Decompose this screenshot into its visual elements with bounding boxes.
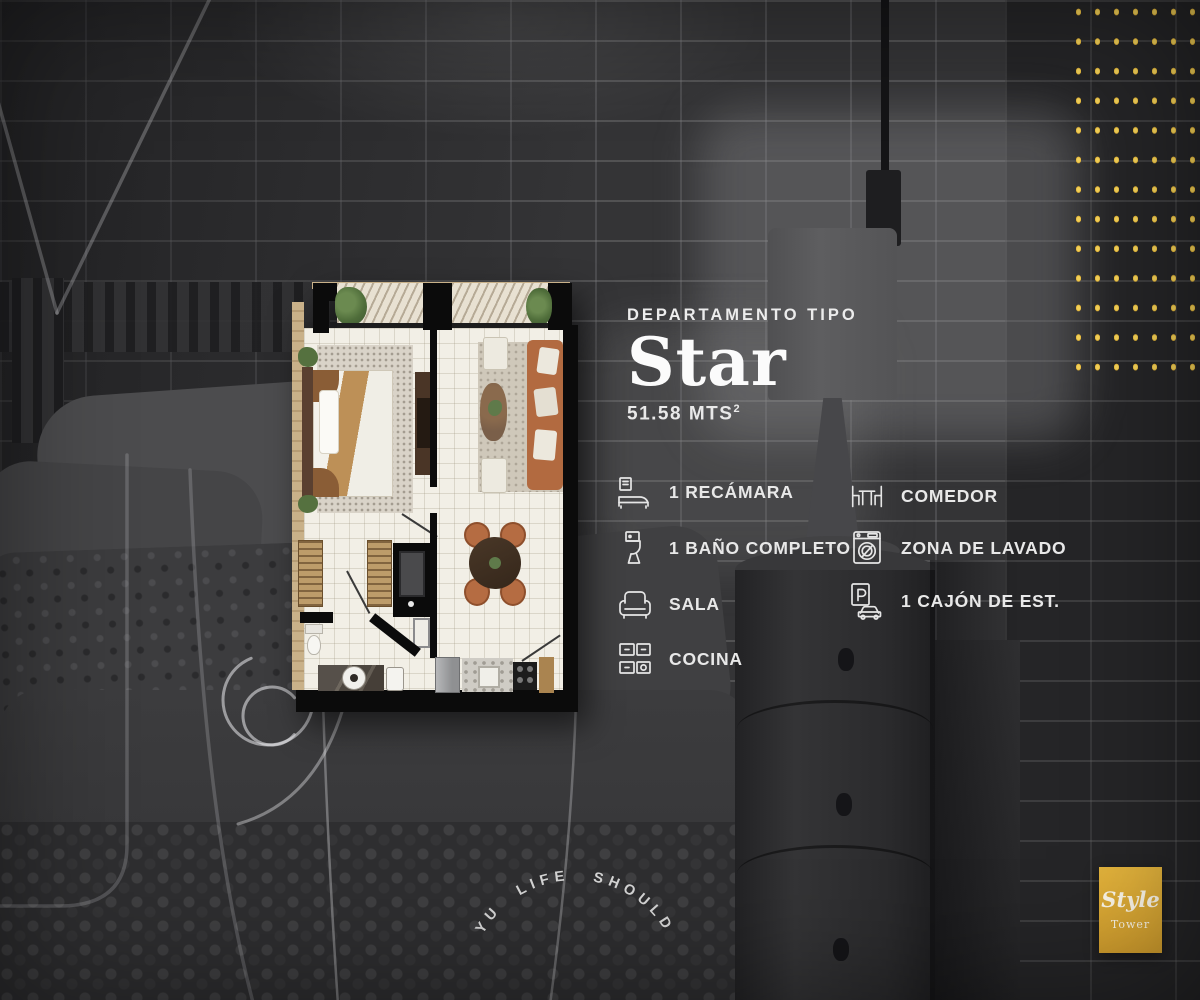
dining-centerpiece bbox=[489, 557, 501, 569]
logo-title: Style bbox=[1099, 887, 1162, 912]
area-value: 51.58 MTS2 bbox=[627, 403, 858, 425]
feature-cajon-est: 1 CAJÓN DE EST. bbox=[847, 581, 1060, 621]
area-number: 51.58 MTS bbox=[627, 403, 733, 424]
bath-fixture bbox=[386, 667, 404, 691]
sofa-icon bbox=[615, 584, 655, 624]
stove-burner-2 bbox=[527, 666, 533, 672]
feature-label: SALA bbox=[669, 594, 720, 615]
feature-label: ZONA DE LAVADO bbox=[901, 538, 1066, 559]
feature-label: 1 BAÑO COMPLETO bbox=[669, 538, 851, 559]
svg-text:YU LIFE SHOULD: YU LIFE SHOULD bbox=[473, 868, 678, 937]
toilet-icon bbox=[615, 528, 655, 568]
letter-u-outline bbox=[0, 455, 127, 906]
closet-right bbox=[367, 540, 392, 607]
hall-tv-knob bbox=[408, 601, 414, 607]
feature-comedor: COMEDOR bbox=[847, 476, 998, 516]
floor-plan bbox=[288, 278, 578, 712]
parking-icon bbox=[847, 581, 887, 621]
kitchen-wood-end bbox=[539, 657, 554, 693]
living-pouf-bottom bbox=[481, 458, 507, 493]
bathroom-top-wall bbox=[300, 612, 333, 623]
bedroom-plant-top bbox=[298, 347, 318, 367]
living-pouf-top bbox=[483, 337, 508, 370]
balcony-rail-left bbox=[337, 323, 423, 328]
feature-recamara: 1 RECÁMARA bbox=[615, 472, 794, 512]
area-superscript: 2 bbox=[733, 403, 741, 415]
kitchen-stove bbox=[513, 662, 537, 690]
letter-y-left-arm bbox=[0, 80, 57, 313]
toilet-bowl bbox=[307, 635, 321, 655]
sofa-cushion-2 bbox=[533, 387, 558, 417]
stove-burner-3 bbox=[517, 677, 523, 683]
hall-appliance-nook bbox=[413, 618, 430, 648]
hanging-line-left bbox=[323, 700, 338, 1000]
floorplan-bottom-wall bbox=[296, 690, 578, 712]
stove-burner-1 bbox=[517, 666, 523, 672]
bed-icon bbox=[615, 472, 655, 512]
laundry-icon bbox=[847, 528, 887, 568]
kitchen-sink bbox=[478, 666, 500, 688]
title-block: DEPARTAMENTO TIPO Star 51.58 MTS2 bbox=[627, 306, 858, 425]
balcony-plant-left bbox=[335, 287, 367, 325]
feature-label: COMEDOR bbox=[901, 486, 998, 507]
feature-label: 1 CAJÓN DE EST. bbox=[901, 591, 1060, 612]
dot-grid-pattern bbox=[1069, 2, 1200, 374]
letter-y-right-arm bbox=[57, 0, 215, 313]
floorplan-right-wall bbox=[563, 325, 578, 690]
style-tower-logo: Style Tower bbox=[1099, 867, 1162, 953]
curved-text-content: YU LIFE SHOULD bbox=[473, 868, 678, 937]
bedroom-headboard bbox=[302, 367, 313, 500]
bed-pillows bbox=[319, 390, 339, 454]
balcony-rail-right bbox=[452, 323, 548, 328]
feature-zona-lavado: ZONA DE LAVADO bbox=[847, 528, 1066, 568]
kitchen-fridge bbox=[435, 657, 460, 693]
balcony-divider bbox=[423, 283, 452, 330]
tv-console-screen bbox=[417, 398, 431, 448]
wall-hall-dining bbox=[430, 513, 437, 658]
feature-label: 1 RECÁMARA bbox=[669, 482, 794, 503]
wall-bedroom-living bbox=[430, 325, 437, 487]
balcony-plant-right bbox=[526, 288, 552, 326]
feature-bano: 1 BAÑO COMPLETO bbox=[615, 528, 851, 568]
kitchen-icon bbox=[615, 639, 655, 679]
dining-icon bbox=[847, 476, 887, 516]
hall-tv-screen bbox=[399, 551, 425, 597]
stove-burner-4 bbox=[527, 677, 533, 683]
sofa-cushion-1 bbox=[536, 347, 559, 376]
curved-text: YU LIFE SHOULD bbox=[440, 820, 730, 1000]
feature-cocina: COCINA bbox=[615, 639, 743, 679]
sofa-cushion-3 bbox=[533, 429, 558, 461]
bath-sink-drain bbox=[350, 674, 358, 682]
logo-subtitle: Tower bbox=[1099, 918, 1162, 931]
flyer-canvas: DEPARTAMENTO TIPO Star 51.58 MTS2 1 RECÁ… bbox=[0, 0, 1200, 1000]
plan-name: Star bbox=[627, 329, 858, 395]
feature-label: COCINA bbox=[669, 649, 743, 670]
closet-left bbox=[298, 540, 323, 607]
feature-sala: SALA bbox=[615, 584, 720, 624]
toilet-tank bbox=[305, 624, 323, 634]
